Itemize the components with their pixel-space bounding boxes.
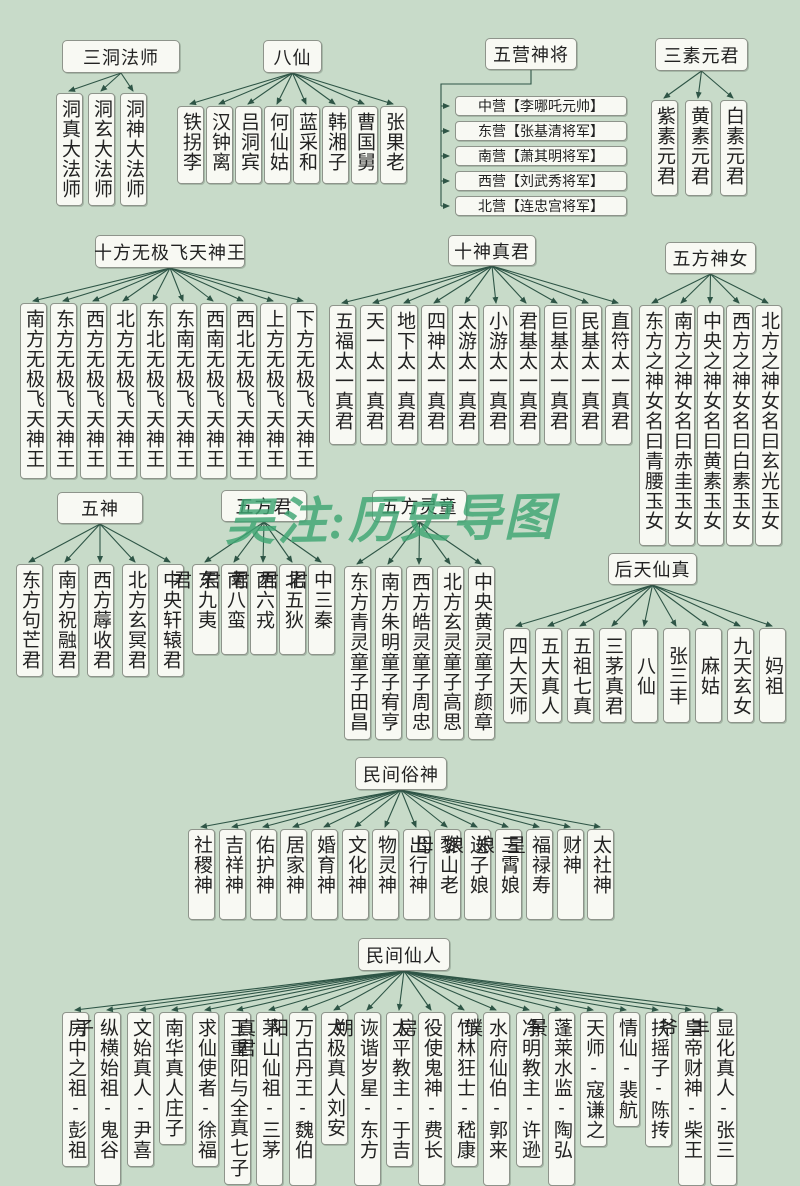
deity-node: 小游太一真君 [483, 305, 510, 445]
deity-node: 中央之神女名曰黄素玉女 [697, 305, 724, 546]
deity-node: 巨基太一真君 [544, 305, 571, 445]
deity-node: 社稷神 [188, 829, 215, 920]
deity-node: 东方之神女名曰青腰玉女 [639, 305, 666, 546]
deity-node: 曹国舅 [351, 106, 378, 184]
deity-node: 吕洞宾 [235, 106, 262, 184]
deity-node: 中三秦君 [308, 564, 335, 655]
deity-node: 三茅真君 [599, 628, 626, 723]
deity-node: 南方之神女名曰赤圭玉女 [668, 305, 695, 546]
deity-node: 东营【张基清将军】 [455, 121, 627, 141]
section-title-sansuyuanjun: 三素元君 [655, 38, 748, 71]
deity-node: 诙谐岁星-东方朔 [354, 1012, 381, 1186]
deity-node: 四大天师 [503, 628, 530, 723]
deity-node: 求仙使者-徐福 [192, 1012, 219, 1167]
deity-node: 佑护神 [250, 829, 277, 920]
deity-node: 福禄寿星 [526, 829, 553, 920]
section-title-wushen: 五神 [57, 492, 143, 524]
deity-node: 直符太一真君 [605, 305, 632, 445]
deity-node: 张三丰 [663, 628, 690, 723]
deity-node: 东方青灵童子田昌 [344, 566, 371, 740]
deity-node: 洞神大法师 [120, 93, 147, 206]
deity-node: 西方蓐收君 [87, 564, 114, 677]
deity-node: 太社神 [587, 829, 614, 920]
deity-node: 黄素元君 [685, 100, 712, 196]
deity-node: 役使鬼神-费长房 [418, 1012, 445, 1186]
deity-node: 中营【李哪吒元帅】 [455, 96, 627, 116]
deity-node: 韩湘子 [322, 106, 349, 184]
deity-node: 西营【刘武秀将军】 [455, 171, 627, 191]
deity-node: 蓝采和 [293, 106, 320, 184]
deity-node: 婚育神 [311, 829, 338, 920]
deity-node: 铁拐李 [177, 106, 204, 184]
deity-node: 显化真人-张三丰 [710, 1012, 737, 1186]
deity-node: 西方皓灵童子周忠 [406, 566, 433, 740]
deity-node: 何仙姑 [264, 106, 291, 184]
deity-node: 民基太一真君 [575, 305, 602, 445]
deity-node: 水府仙伯-郭来璞 [483, 1012, 510, 1186]
deity-node: 洞玄大法师 [88, 93, 115, 206]
deity-node: 文化神 [342, 829, 369, 920]
deity-node: 北方玄灵童子高思 [437, 566, 464, 740]
section-title-houtianxianzhen: 后天仙真 [608, 553, 697, 585]
deity-node: 北营【连忠宫将军】 [455, 196, 627, 216]
deity-node: 西北无极飞天神王 [230, 303, 257, 479]
deity-node: 吉祥神 [219, 829, 246, 920]
section-title-baxian: 八仙 [263, 40, 322, 73]
deity-node: 北方玄冥君 [122, 564, 149, 677]
deity-node: 天一太一真君 [360, 305, 387, 445]
deity-node: 东方无极飞天神王 [50, 303, 77, 479]
deity-node: 蓬莱水监-陶弘景 [548, 1012, 575, 1186]
section-title-sandongfashi: 三洞法师 [62, 40, 180, 73]
deity-node: 情仙-裴航 [613, 1012, 640, 1127]
deity-node: 茅山仙祖-三茅真君 [256, 1012, 283, 1186]
deity-node: 紫素元君 [651, 100, 678, 196]
section-title-minjianxianren: 民间仙人 [358, 938, 450, 971]
deity-node: 八仙 [631, 628, 658, 723]
deity-node: 南方朱明童子宥亨 [375, 566, 402, 740]
deity-node: 汉钟离 [206, 106, 233, 184]
watermark: 吴注:历史导图 [224, 477, 556, 555]
section-title-shifang: 十方无极飞天神王 [95, 235, 245, 268]
deity-node: 东南无极飞天神王 [170, 303, 197, 479]
deity-node: 财神 [557, 829, 584, 920]
deity-node: 南华真人庄子 [159, 1012, 186, 1145]
deity-node: 妈祖 [759, 628, 786, 723]
deity-node: 太游太一真君 [452, 305, 479, 445]
section-title-wufangshennv: 五方神女 [665, 242, 756, 274]
section-title-shishenzhenjun: 十神真君 [448, 235, 536, 266]
deity-node: 上方无极飞天神王 [260, 303, 287, 479]
deity-node: 下方无极飞天神王 [290, 303, 317, 479]
deity-node: 天师-寇谦之 [580, 1012, 607, 1147]
deity-node: 地下太一真君 [391, 305, 418, 445]
deity-node: 西南无极飞天神王 [200, 303, 227, 479]
deity-node: 麻姑 [695, 628, 722, 723]
deity-node: 西方无极飞天神王 [80, 303, 107, 479]
deity-node: 皇帝财神-柴王爷 [678, 1012, 705, 1186]
deity-node: 四神太一真君 [421, 305, 448, 445]
deity-node: 西方之神女名曰白素玉女 [726, 305, 753, 546]
deity-tree-diagram: 三洞法师 八仙 五营神将 三素元君 十方无极飞天神王 十神真君 五方神女 五神 … [0, 0, 800, 1186]
deity-node: 白素元君 [720, 100, 747, 196]
deity-node: 五福太一真君 [329, 305, 356, 445]
deity-node: 中央黄灵童子颜章 [468, 566, 495, 740]
deity-node: 九天玄女 [727, 628, 754, 723]
deity-node: 五大真人 [535, 628, 562, 723]
deity-node: 东北无极飞天神王 [140, 303, 167, 479]
deity-node: 北方之神女名曰玄光玉女 [755, 305, 782, 546]
deity-node: 万古丹王-魏伯阳 [289, 1012, 316, 1186]
deity-node: 北方无极飞天神王 [110, 303, 137, 479]
deity-node: 南营【萧其明将军】 [455, 146, 627, 166]
deity-node: 张果老 [380, 106, 407, 184]
deity-node: 东方句芒君 [16, 564, 43, 677]
section-title-minjiansushen: 民间俗神 [355, 757, 447, 790]
deity-node: 物灵神 [372, 829, 399, 920]
section-title-wuyingshenjiang: 五营神将 [485, 38, 577, 70]
deity-node: 君基太一真君 [513, 305, 540, 445]
deity-node: 文始真人-尹喜 [127, 1012, 154, 1167]
deity-node: 南方祝融君 [52, 564, 79, 677]
deity-node: 五祖七真 [567, 628, 594, 723]
deity-node: 纵横始祖-鬼谷子 [94, 1012, 121, 1186]
deity-node: 居家神 [280, 829, 307, 920]
deity-node: 南方无极飞天神王 [20, 303, 47, 479]
deity-node: 洞真大法师 [56, 93, 83, 206]
